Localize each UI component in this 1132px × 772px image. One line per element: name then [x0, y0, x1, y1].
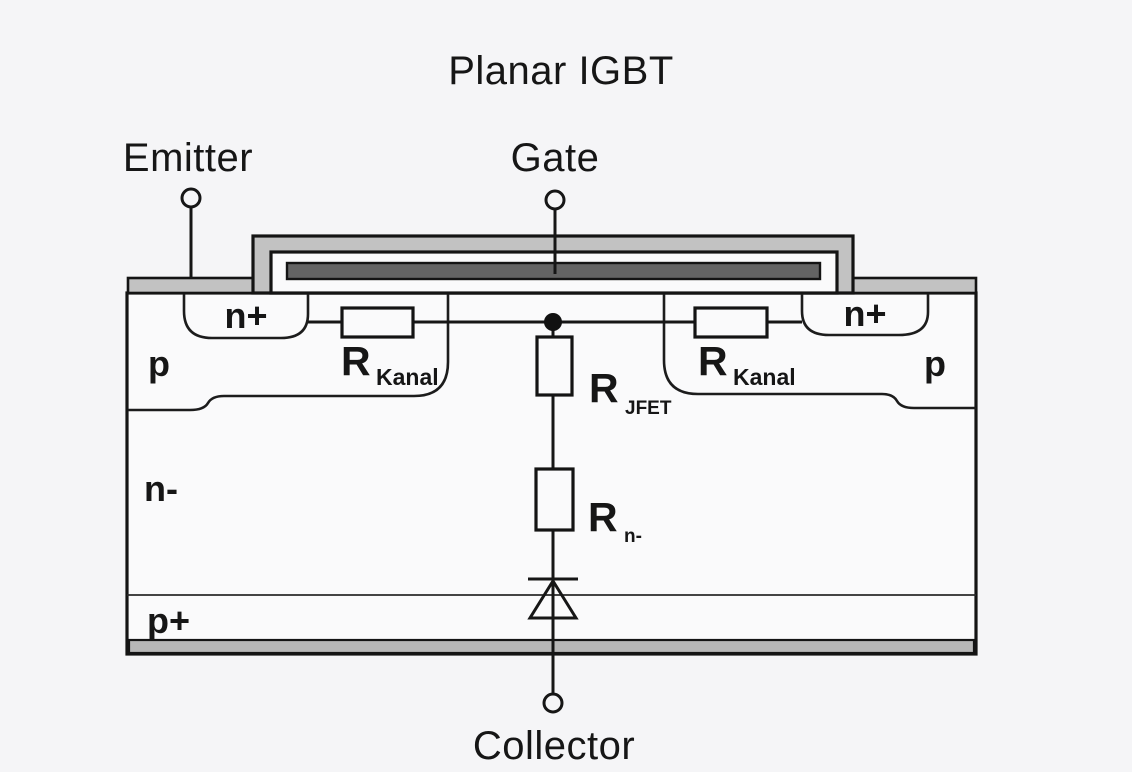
- r-kanal-left-symbol: R: [341, 338, 371, 384]
- r-n-drift-symbol: R: [588, 494, 618, 540]
- r-n-drift-subscript: n-: [624, 526, 642, 547]
- junction-node-dot: [544, 313, 562, 331]
- r-kanal-left-subscript: Kanal: [376, 364, 439, 390]
- r-kanal-right-subscript: Kanal: [733, 364, 796, 390]
- n-minus-label: n-: [144, 468, 178, 509]
- planar-igbt-diagram: Planar IGBT Emitter Gate Collector n+: [0, 0, 1132, 772]
- gate-terminal: [546, 191, 564, 209]
- emitter-metal-right: [850, 278, 976, 293]
- igbt-cross-section-svg: Planar IGBT Emitter Gate Collector n+: [0, 0, 1132, 772]
- n-plus-right-label: n+: [843, 293, 886, 334]
- emitter-label: Emitter: [123, 136, 253, 180]
- collector-label: Collector: [473, 724, 635, 768]
- r-jfet-resistor: [537, 337, 572, 395]
- r-kanal-left-resistor: [342, 308, 413, 337]
- p-right-label: p: [924, 343, 946, 384]
- emitter-terminal: [182, 189, 200, 207]
- n-plus-left-label: n+: [224, 295, 267, 336]
- p-left-label: p: [148, 343, 170, 384]
- r-n-drift-resistor: [536, 469, 573, 530]
- p-plus-label: p+: [147, 600, 190, 641]
- emitter-metal-left: [128, 278, 255, 293]
- diagram-title: Planar IGBT: [448, 49, 674, 93]
- r-jfet-symbol: R: [589, 365, 619, 411]
- r-kanal-right-symbol: R: [698, 338, 728, 384]
- r-jfet-subscript: JFET: [625, 398, 672, 419]
- gate-label: Gate: [511, 136, 600, 180]
- collector-terminal: [544, 694, 562, 712]
- r-kanal-right-resistor: [695, 308, 767, 337]
